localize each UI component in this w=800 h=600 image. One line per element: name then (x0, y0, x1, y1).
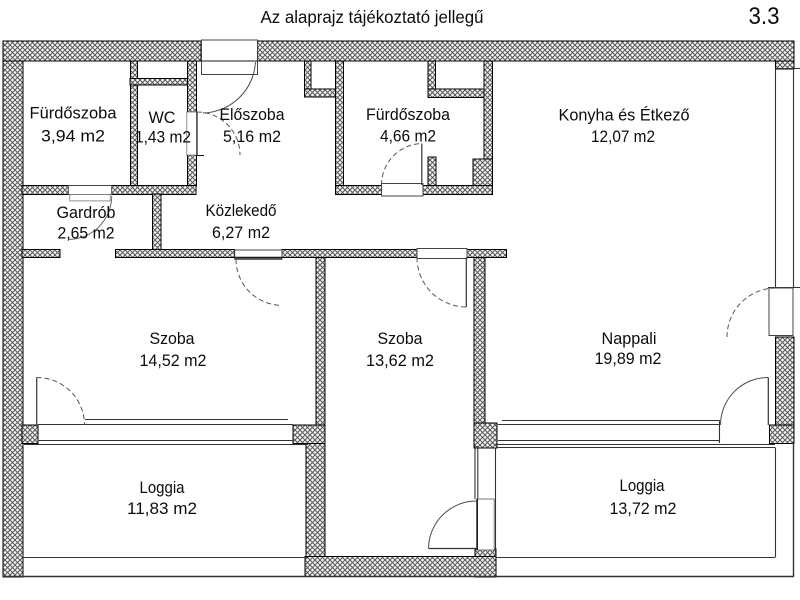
svg-text:5,16 m2: 5,16 m2 (223, 127, 281, 146)
svg-text:Az alaprajz tájékoztató jelleg: Az alaprajz tájékoztató jellegű (261, 7, 484, 27)
svg-text:Konyha és Étkező: Konyha és Étkező (559, 106, 690, 125)
svg-text:Loggia: Loggia (620, 476, 665, 495)
svg-text:Szoba: Szoba (150, 329, 196, 348)
svg-text:13,72 m2: 13,72 m2 (610, 499, 677, 518)
svg-text:4,66 m2: 4,66 m2 (380, 127, 436, 146)
svg-text:Fürdőszoba: Fürdőszoba (30, 104, 118, 123)
svg-text:11,83 m2: 11,83 m2 (127, 499, 197, 518)
svg-text:Gardrób: Gardrób (57, 203, 116, 222)
svg-text:1,43 m2: 1,43 m2 (135, 128, 191, 147)
svg-text:Közlekedő: Közlekedő (206, 201, 277, 220)
svg-text:13,62 m2: 13,62 m2 (366, 351, 434, 370)
svg-text:12,07 m2: 12,07 m2 (591, 127, 655, 146)
svg-text:3.3: 3.3 (749, 3, 780, 30)
svg-text:6,27 m2: 6,27 m2 (212, 223, 270, 242)
svg-text:Nappali: Nappali (602, 329, 657, 348)
svg-text:14,52 m2: 14,52 m2 (140, 351, 207, 370)
svg-text:Előszoba: Előszoba (220, 105, 286, 124)
svg-text:WC: WC (149, 108, 176, 127)
svg-text:Szoba: Szoba (378, 329, 424, 348)
svg-text:19,89 m2: 19,89 m2 (595, 349, 662, 368)
svg-text:3,94 m2: 3,94 m2 (41, 127, 105, 146)
svg-text:2,65 m2: 2,65 m2 (58, 224, 115, 243)
svg-text:Loggia: Loggia (140, 478, 185, 497)
svg-text:Fürdőszoba: Fürdőszoba (366, 105, 451, 124)
